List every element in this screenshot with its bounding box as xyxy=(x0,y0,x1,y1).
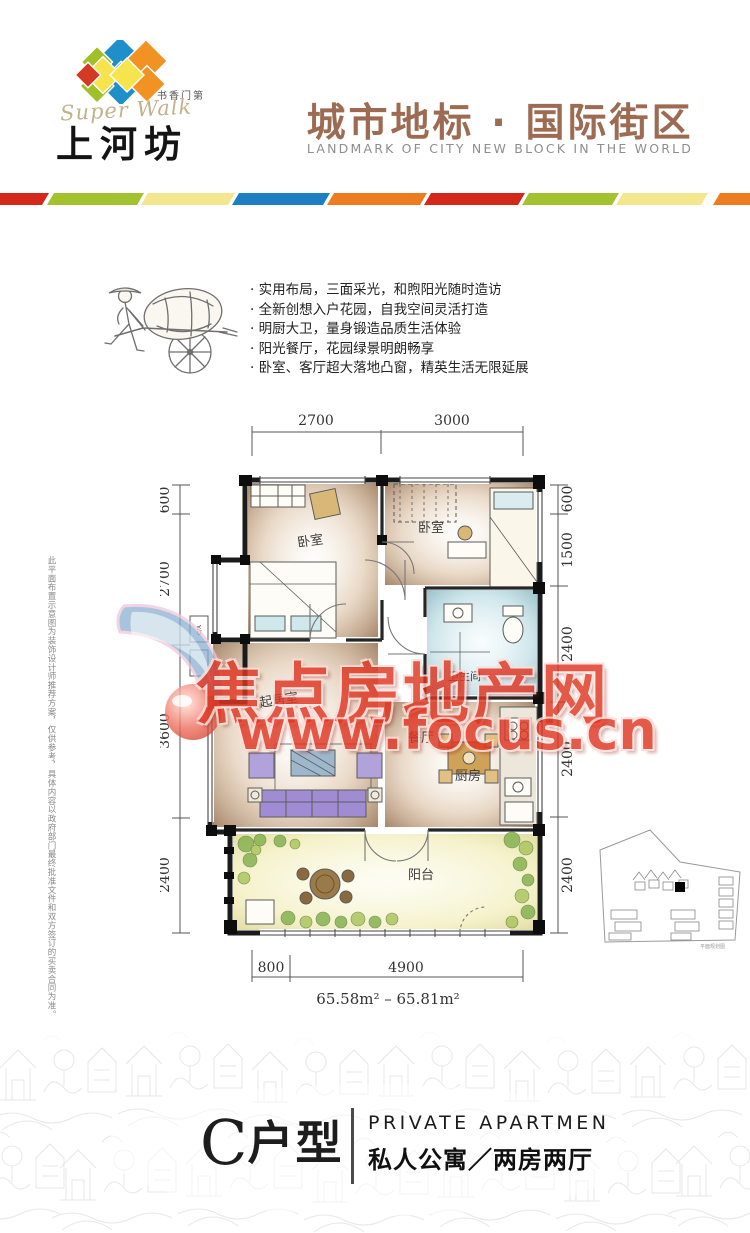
unit-type-cn: 私人公寓／两房两厅 xyxy=(368,1140,593,1175)
svg-text:3600: 3600 xyxy=(160,713,173,749)
poster-page: 书香门第 Super Walk 上河坊 城市地标 · 国际街区 LANDMARK… xyxy=(0,0,750,1233)
room-label-bedroom-right: 卧室 xyxy=(418,520,444,536)
unit-type-en: PRIVATE APARTMEN xyxy=(368,1112,610,1134)
floor-plan: 卧室 卧室 卫生间 起居室 餐厅 厨房 阳台 C/A 2700 3000 600… xyxy=(160,392,750,1010)
unit-suffix: 户型 xyxy=(247,1116,343,1170)
svg-text:600: 600 xyxy=(560,486,576,513)
svg-text:2400: 2400 xyxy=(560,741,576,777)
svg-text:800: 800 xyxy=(258,960,285,976)
area-range: 65.58m² – 65.81m² xyxy=(316,990,459,1008)
site-plan-caption: 平面规划图 xyxy=(700,943,725,950)
brand-name: 上河坊 xyxy=(56,114,188,168)
feature-item: 阳光餐厅，花园绿景明朗畅享 xyxy=(250,340,550,360)
ac-label: C/A xyxy=(197,624,203,635)
feature-item: 明厨大卫，量身锻造品质生活体验 xyxy=(250,320,550,340)
svg-text:2700: 2700 xyxy=(160,561,173,597)
unit-letter: C xyxy=(200,1106,247,1179)
wheelbarrow-sketch-icon xyxy=(95,266,245,382)
room-label-kitchen: 厨房 xyxy=(455,768,481,784)
room-label-bathroom: 卫生间 xyxy=(448,669,481,683)
room-label-dining: 餐厅 xyxy=(408,730,434,746)
svg-text:2700: 2700 xyxy=(298,413,334,429)
title-divider xyxy=(351,1108,354,1184)
brand-diamonds-logo-icon xyxy=(55,40,167,104)
feature-list: 实用布局，三面采光，和煦阳光随时造访 全新创想入户花园，自我空间灵活打造 明厨大… xyxy=(250,281,550,379)
feature-item: 卧室、客厅超大落地凸窗，精英生活无限延展 xyxy=(250,359,550,379)
svg-text:600: 600 xyxy=(160,487,173,514)
svg-text:3000: 3000 xyxy=(434,413,470,429)
room-label-balcony: 阳台 xyxy=(408,868,434,883)
site-plan: 平面规划图 xyxy=(600,830,740,950)
current-building-marker xyxy=(675,882,685,892)
feature-item: 全新创想入户花园，自我空间灵活打造 xyxy=(250,301,550,321)
feature-item: 实用布局，三面采光，和煦阳光随时造访 xyxy=(250,281,550,301)
svg-text:2400: 2400 xyxy=(560,626,576,662)
unit-title: C户型 xyxy=(200,1106,343,1179)
svg-text:4900: 4900 xyxy=(388,960,424,976)
svg-text:1500: 1500 xyxy=(560,532,576,568)
disclaimer-text: 此平面布置示意图为装饰设计师推荐方案，仅供参考，具体内容以政府部门最终批准文件和… xyxy=(44,556,58,1030)
decor-stripe xyxy=(0,193,750,205)
slogan-cn: 城市地标 · 国际街区 xyxy=(280,92,720,148)
svg-text:2400: 2400 xyxy=(560,857,576,893)
slogan-en: LANDMARK OF CITY NEW BLOCK IN THE WORLD xyxy=(276,141,724,156)
svg-text:2400: 2400 xyxy=(160,857,173,893)
